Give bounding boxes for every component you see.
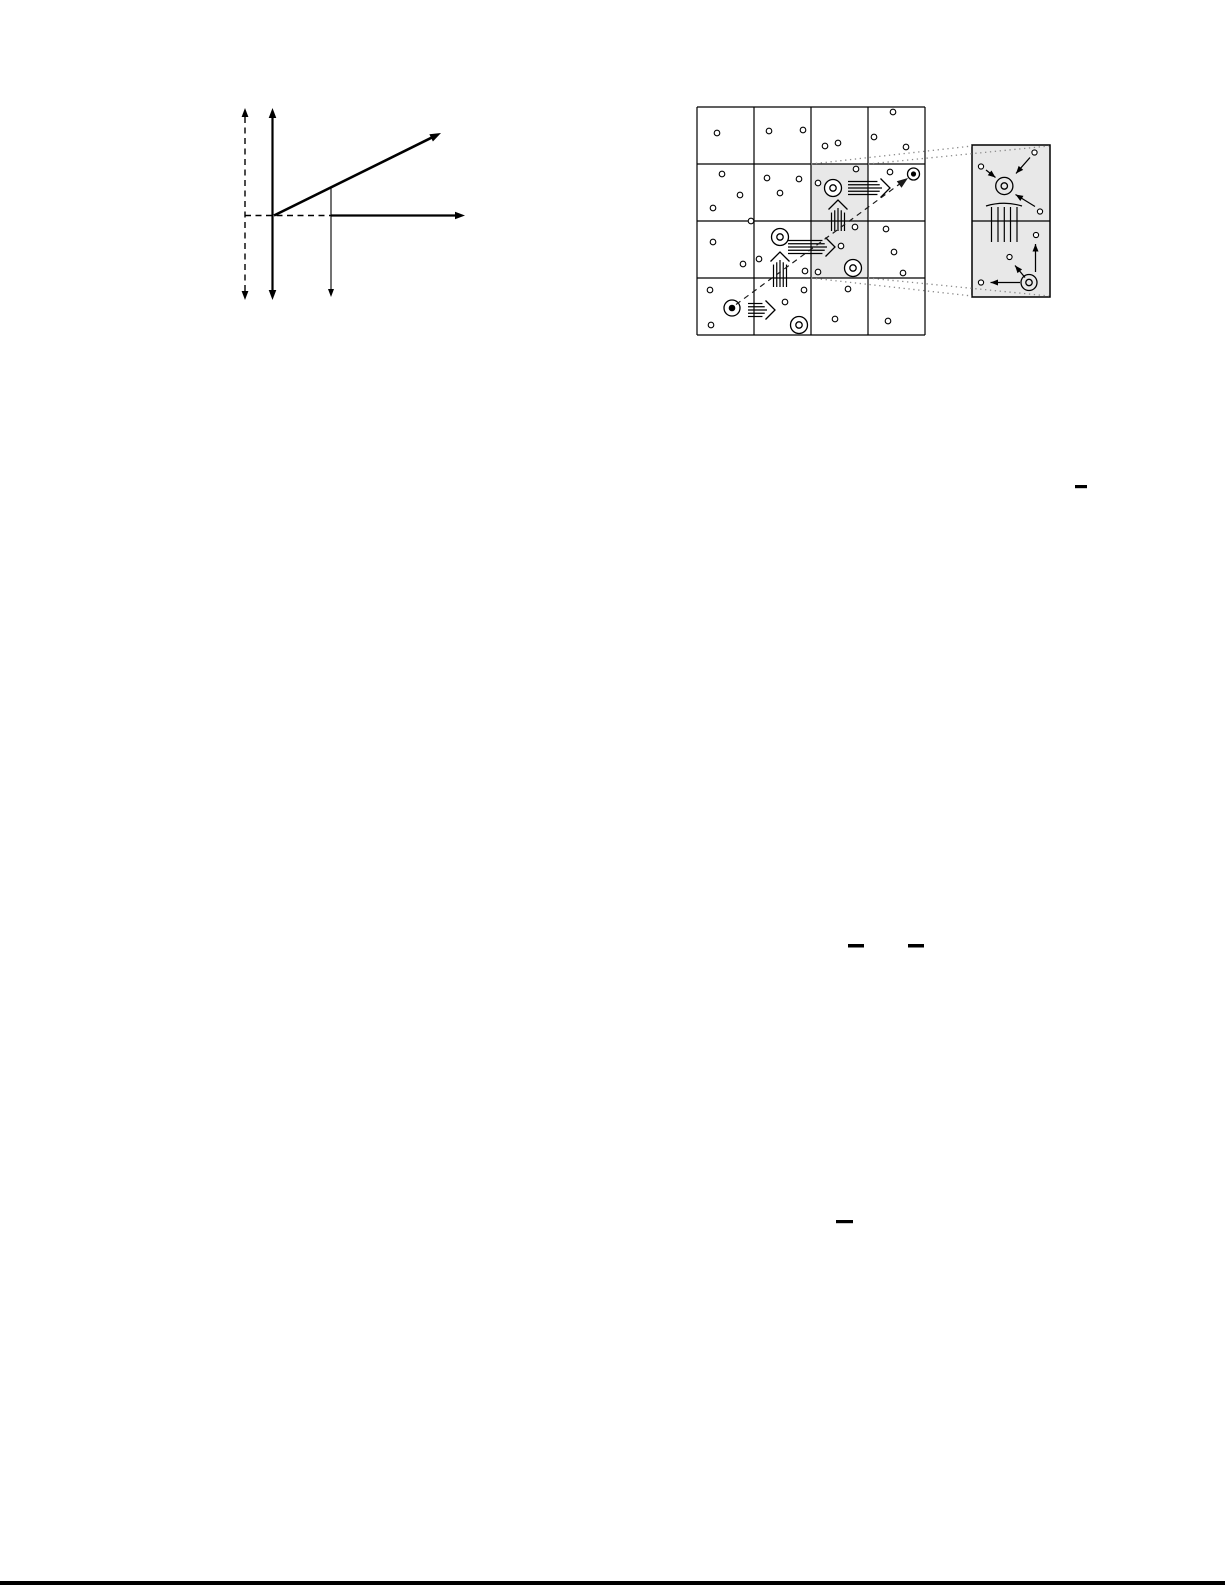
grain-circle: [900, 270, 906, 276]
grain-circle: [710, 205, 716, 211]
grain-circle: [890, 109, 896, 115]
inset-grain-circle: [1037, 209, 1042, 214]
grain-circle: [748, 218, 754, 224]
grain-circle: [883, 226, 889, 232]
fraction-bar: [908, 944, 924, 948]
grain-circle: [835, 140, 841, 146]
grain-circle: [845, 286, 851, 292]
grain-circle: [708, 322, 714, 328]
grain-circle: [740, 261, 746, 267]
inset-grain-circle: [1032, 150, 1037, 155]
bottom-rule-bar: [0, 1581, 1225, 1585]
drop-arrowhead: [328, 289, 334, 297]
magnifier-connector-dotted-line: [811, 278, 972, 296]
inset-grain-circle: [978, 280, 983, 285]
grain-circle: [852, 224, 858, 230]
fraction-bar: [848, 944, 864, 948]
double-circle-symbol: [845, 260, 862, 277]
grain-circle: [832, 316, 838, 322]
grain-circle: [815, 269, 821, 275]
grain-circle: [719, 171, 725, 177]
grain-circle: [764, 175, 770, 181]
grain-circle: [885, 318, 891, 324]
grain-circle: [714, 130, 720, 136]
dashed-axis-down-arrowhead: [242, 291, 249, 300]
page-canvas: [0, 0, 1225, 1585]
grain-circle: [891, 249, 897, 255]
inset-double-circle: [996, 177, 1013, 194]
grid-figure: [697, 107, 925, 335]
grain-circle: [838, 243, 844, 249]
target-circle-dot: [911, 171, 916, 176]
grain-circle: [887, 169, 893, 175]
grain-circle: [903, 144, 909, 150]
grain-circle: [756, 256, 762, 262]
grain-circle: [822, 143, 828, 149]
vertical-axis-down-arrowhead: [269, 290, 277, 300]
stray-fraction-bars: [836, 485, 1087, 1223]
trajectory-arrowhead: [897, 178, 908, 188]
inset-grain-circle: [1007, 254, 1012, 259]
inset-grain-circle: [978, 164, 983, 169]
grain-circle: [801, 287, 807, 293]
grain-circle: [815, 180, 821, 186]
grain-circle: [871, 134, 877, 140]
grain-circle: [707, 287, 713, 293]
grain-circle: [777, 190, 783, 196]
ray-line: [274, 137, 432, 215]
grain-circle: [710, 239, 716, 245]
grain-circle: [796, 176, 802, 182]
vertical-axis-up-arrowhead: [269, 108, 277, 118]
grain-circle: [800, 127, 806, 133]
page-bottom-rule: [0, 1581, 1225, 1585]
grain-circle: [853, 166, 859, 172]
grain-circle: [737, 192, 743, 198]
inset-grain-circle: [1033, 232, 1038, 237]
grain-circle: [802, 268, 808, 274]
fraction-bar: [1075, 485, 1087, 488]
grain-circle: [782, 299, 788, 305]
fraction-bar: [836, 1220, 853, 1223]
dashed-axis-up-arrowhead: [242, 108, 249, 117]
grain-circle: [766, 128, 772, 134]
ray-arrowhead: [429, 133, 441, 141]
double-circle-symbol: [772, 229, 789, 246]
double-circle-symbol: [791, 317, 808, 334]
magnifier-connector-dotted-line: [811, 146, 972, 164]
axes-figure: [242, 108, 465, 300]
target-circle-dot: [729, 305, 736, 312]
inset-double-circle: [1021, 275, 1037, 291]
double-circle-symbol: [825, 180, 842, 197]
horizontal-axis-arrowhead: [455, 212, 465, 220]
paper-page: [0, 0, 1225, 1585]
